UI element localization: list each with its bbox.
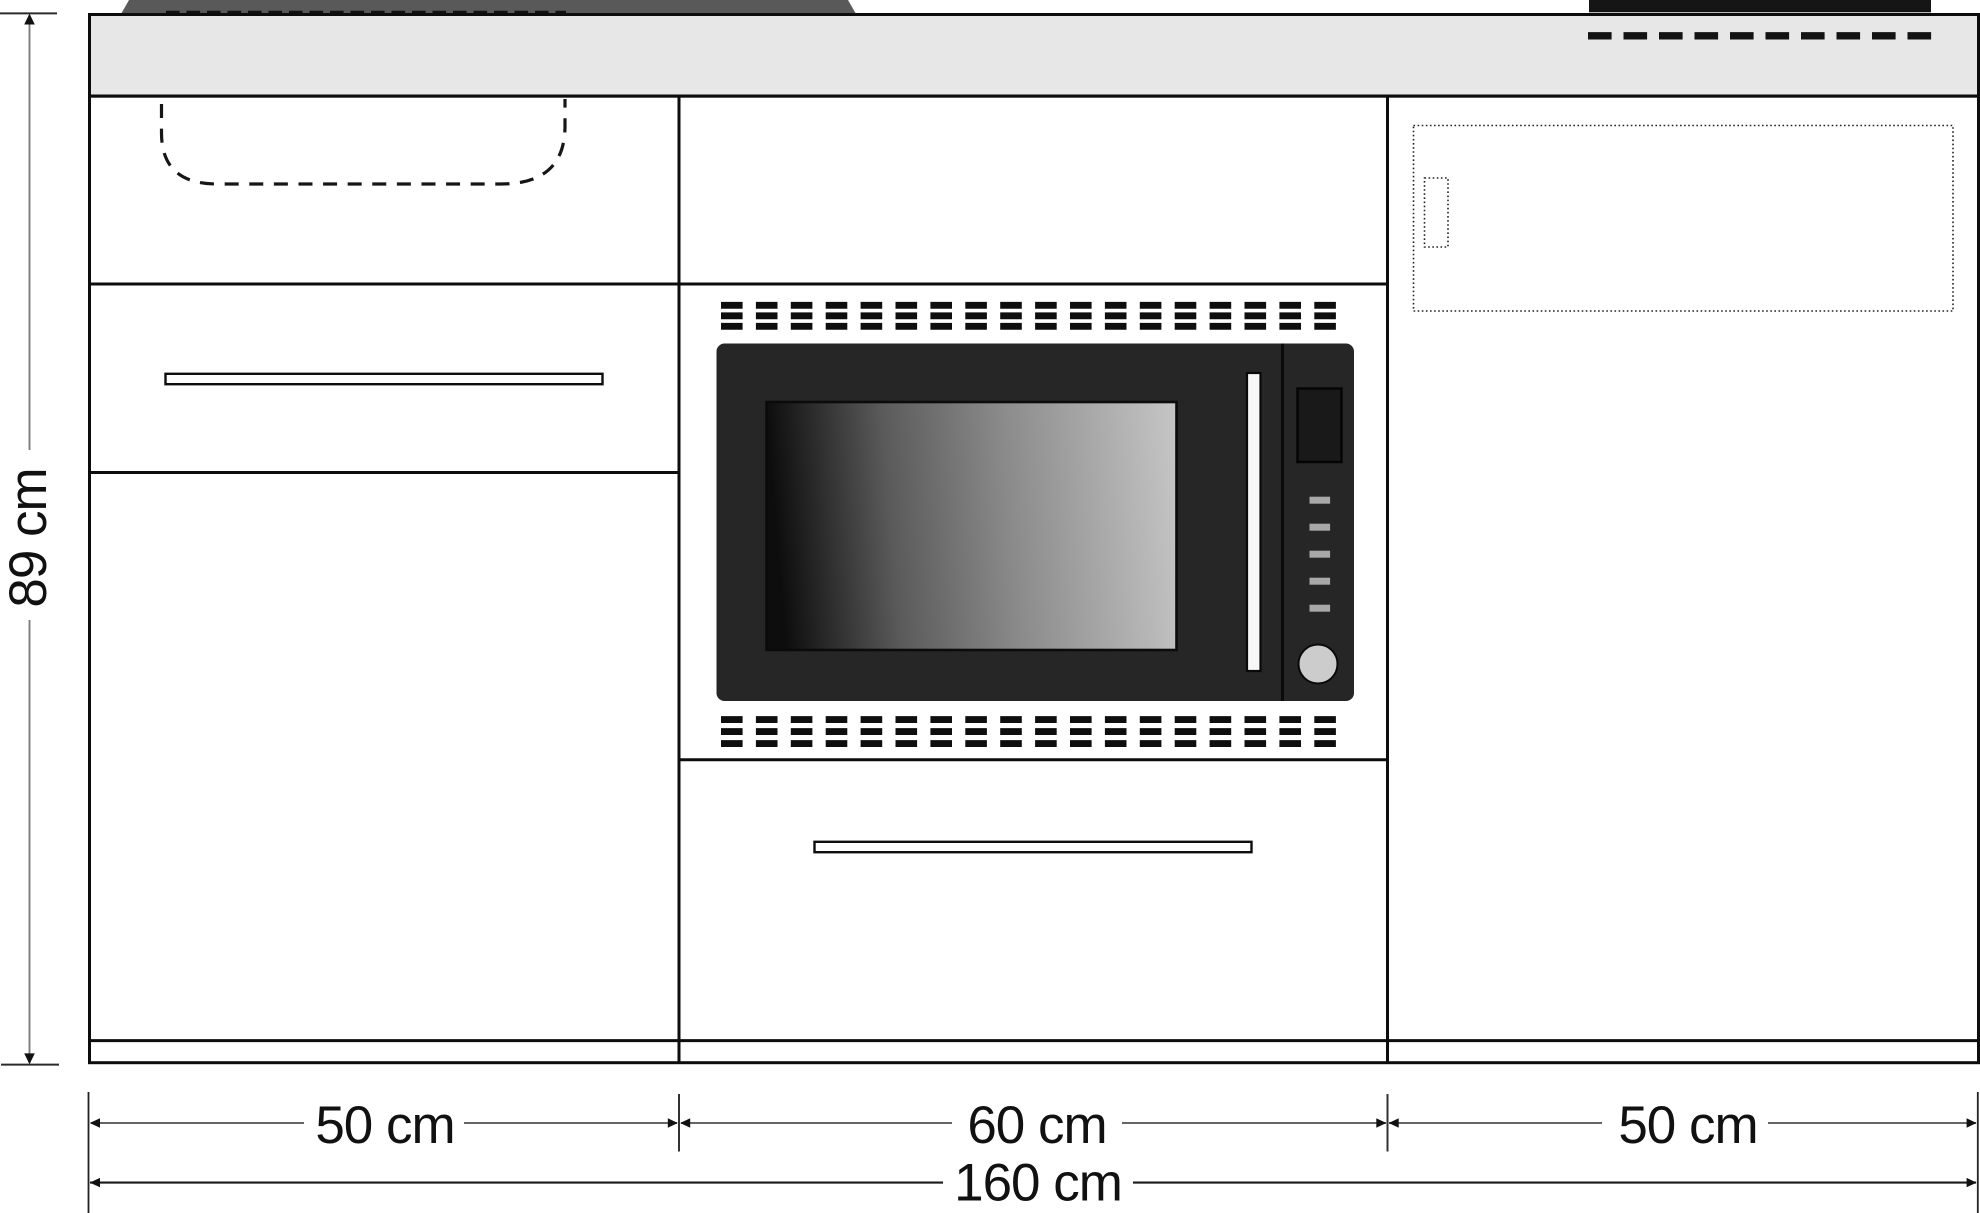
- svg-text:50 cm: 50 cm: [1618, 1096, 1757, 1155]
- svg-text:50 cm: 50 cm: [315, 1096, 454, 1155]
- svg-text:89 cm: 89 cm: [0, 468, 58, 607]
- svg-text:160 cm: 160 cm: [954, 1154, 1122, 1213]
- svg-text:60 cm: 60 cm: [967, 1096, 1106, 1155]
